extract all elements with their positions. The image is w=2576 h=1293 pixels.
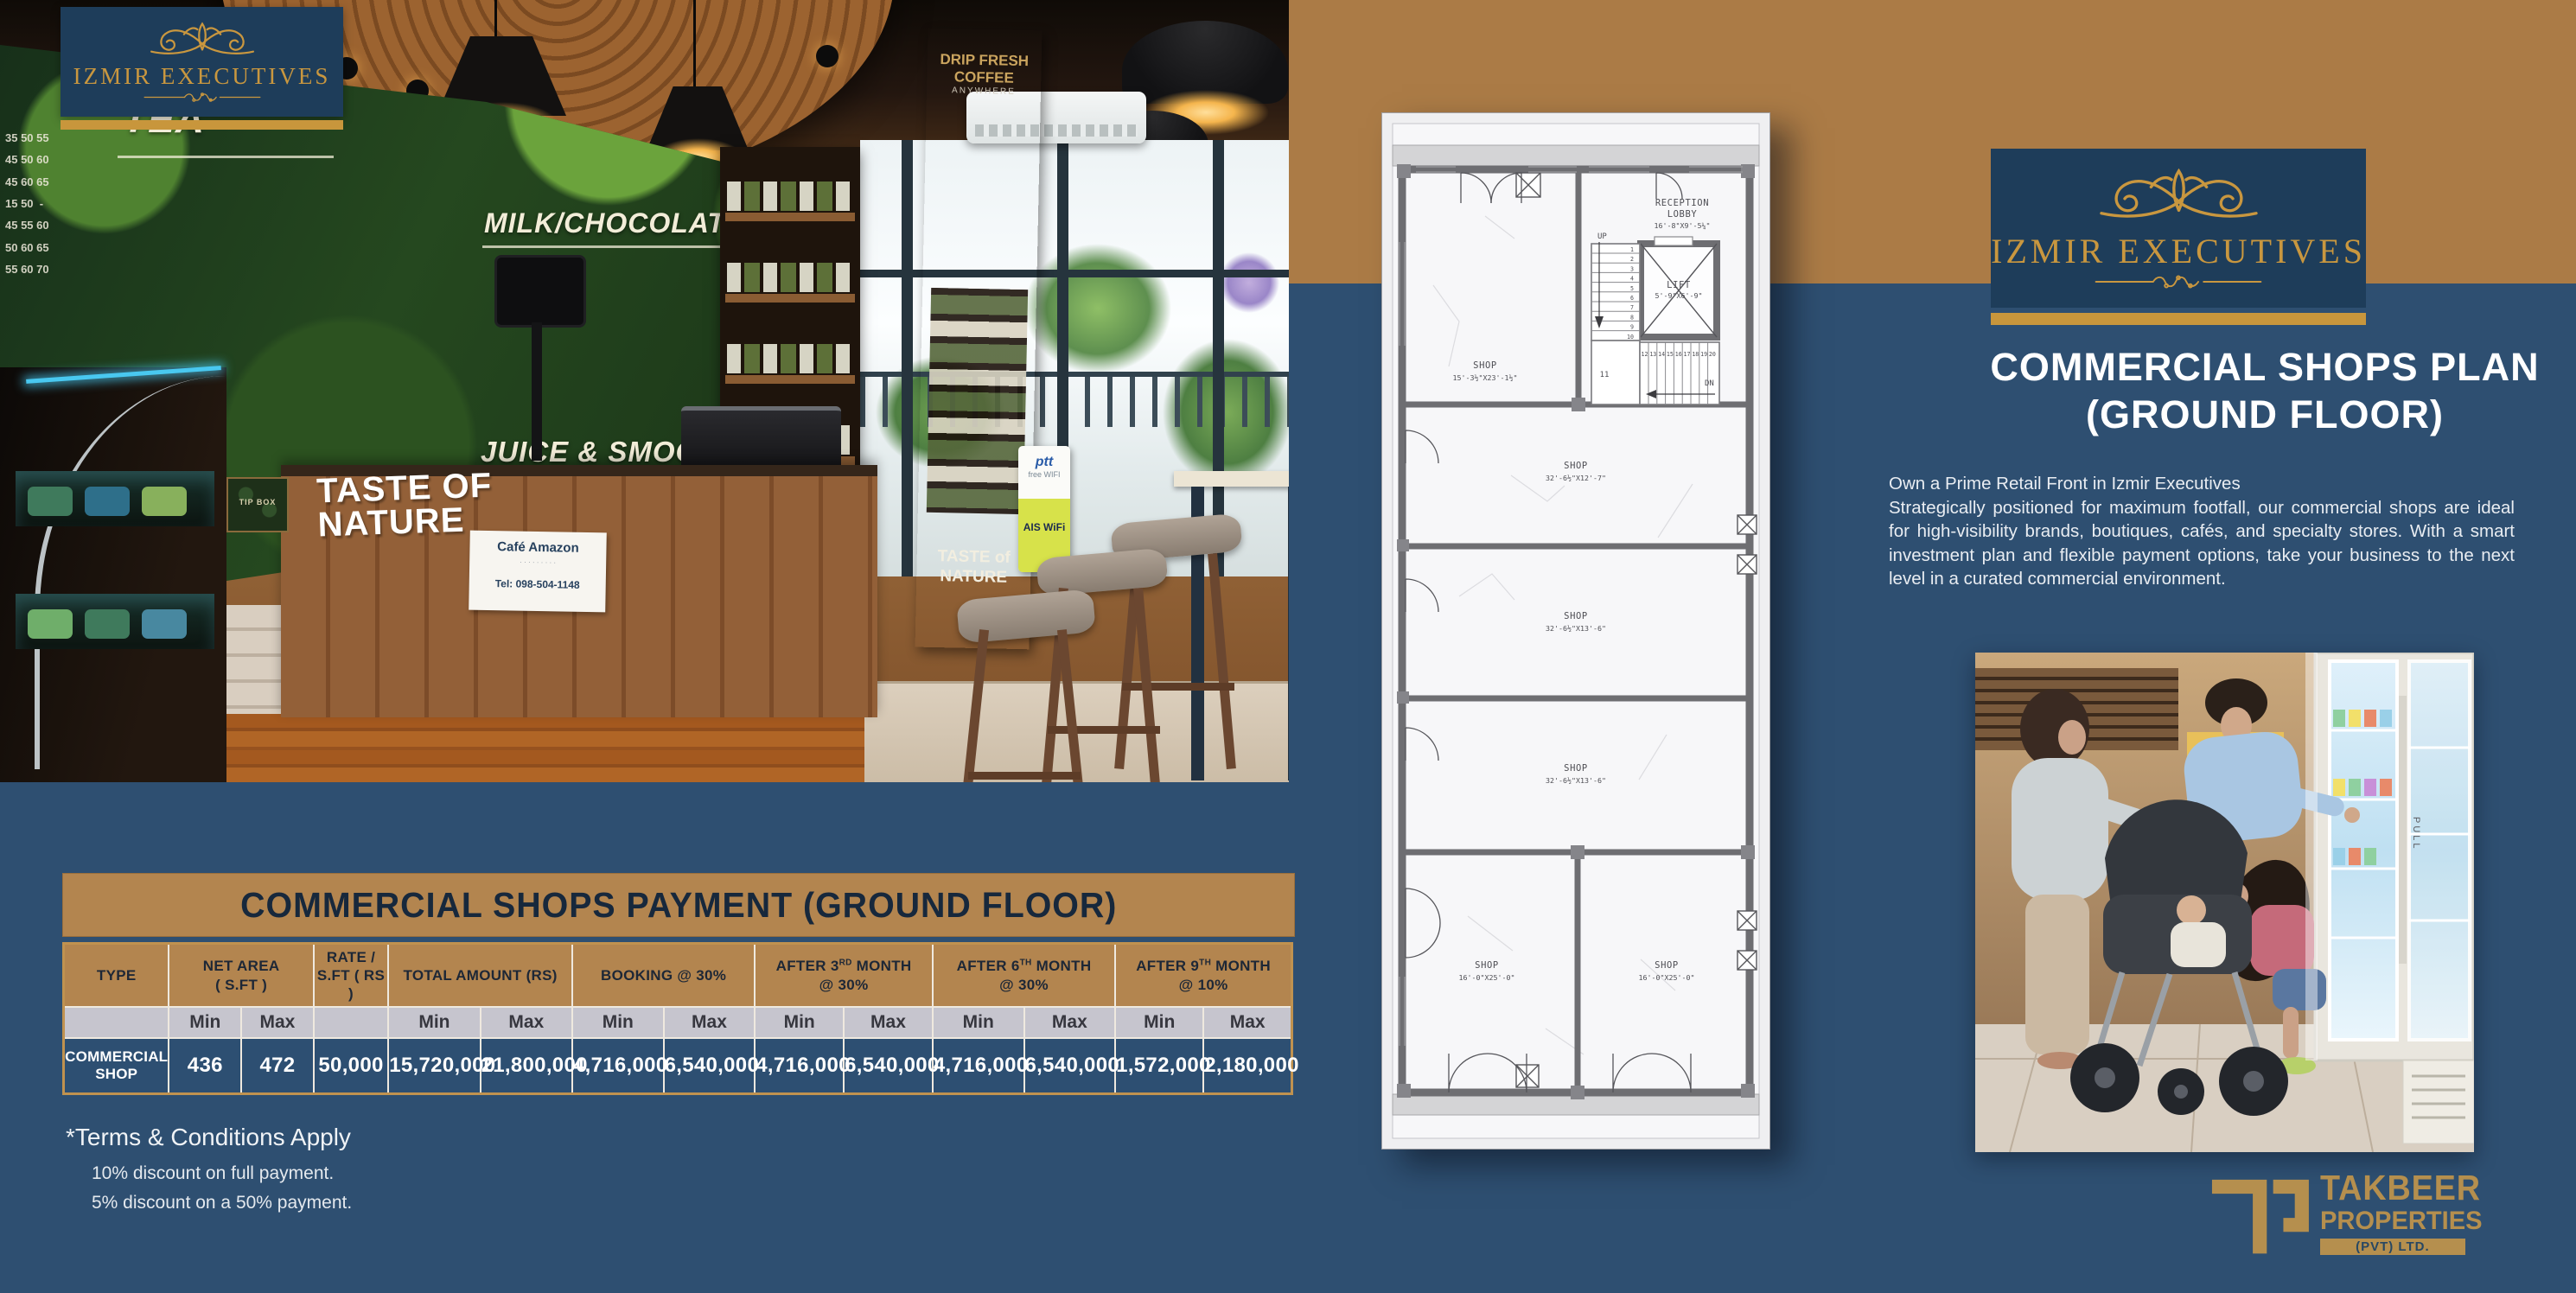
table-top [1174, 471, 1289, 487]
ptt-logo: ptt [1018, 455, 1070, 470]
table-leg [1288, 487, 1289, 780]
minmax-subheader: Min [169, 1007, 241, 1038]
terms-line: 10% discount on full payment. [92, 1163, 334, 1184]
svg-text:SHOP: SHOP [1473, 360, 1497, 371]
minmax-subheader: Max [664, 1007, 756, 1038]
pull-label: PULL [2411, 817, 2421, 851]
payment-table: TYPENET AREA( S.FT )RATE /S.FT ( RS )TOT… [62, 942, 1293, 1095]
row-value-cell: 2,180,000 [1203, 1038, 1291, 1094]
counter-taste-sign: TASTE OF NATURE [316, 468, 494, 542]
bar-stool [958, 595, 1100, 782]
paper-subtext: · · · · · · · · · [469, 557, 606, 568]
shelf [725, 294, 855, 303]
row-value-cell: 1,572,000 [1115, 1038, 1203, 1094]
cafe-notice-paper: Café Amazon · · · · · · · · · Tel: 098-5… [469, 531, 607, 613]
pos-stand [532, 322, 542, 461]
products [727, 263, 853, 292]
row-value-cell: 6,540,000 [1024, 1038, 1116, 1094]
lamp-wire [693, 0, 696, 86]
svg-text:9: 9 [1630, 324, 1634, 331]
svg-text:DN: DN [1705, 379, 1714, 388]
svg-text:SHOP: SHOP [1655, 960, 1679, 971]
svg-text:15: 15 [1667, 351, 1674, 358]
shelf [725, 375, 855, 384]
fridge-handle [2399, 696, 2407, 964]
minmax-subheader: Min [572, 1007, 664, 1038]
svg-text:SHOP: SHOP [1564, 461, 1588, 471]
column-header: NET AREA( S.FT ) [169, 944, 313, 1008]
svg-text:7: 7 [1630, 304, 1634, 311]
drip-sign-line2: COFFEE [927, 68, 1041, 88]
svg-text:10: 10 [1627, 334, 1634, 341]
minmax-subheader: Max [1203, 1007, 1291, 1038]
lamp-wire [494, 0, 497, 38]
svg-text:20: 20 [1709, 351, 1716, 358]
izmir-logo-card-panel: IZMIR EXECUTIVES [1991, 149, 2366, 308]
flourish-divider-icon [2092, 271, 2265, 292]
window-mullion [902, 140, 913, 576]
panel-title: COMMERCIAL SHOPS PLAN (GROUND FLOOR) [1928, 344, 2576, 439]
ornament-icon [137, 20, 267, 63]
gold-underline [1991, 313, 2366, 325]
svg-text:32'-6½"X13'-6": 32'-6½"X13'-6" [1546, 624, 1606, 633]
intro-paragraph: Strategically positioned for maximum foo… [1889, 496, 2515, 590]
takbeer-monogram-icon [2209, 1170, 2311, 1264]
column-header: TYPE [64, 944, 169, 1008]
lift: LIFT 5'-9"X6'-9" [1641, 237, 1717, 337]
pastry-display-case [0, 367, 226, 782]
flourish-divider-icon [142, 90, 263, 105]
row-value-cell: 6,540,000 [844, 1038, 933, 1094]
svg-text:5'-9"X6'-9": 5'-9"X6'-9" [1655, 291, 1703, 300]
row-type-cell: COMMERCIAL SHOP [64, 1038, 169, 1094]
svg-text:19: 19 [1700, 351, 1707, 358]
svg-text:16: 16 [1675, 351, 1682, 358]
light-streak [2305, 653, 2318, 1061]
svg-text:4: 4 [1630, 276, 1634, 283]
floor-plan-sheet: LIFT 5'-9"X6'-9" 12345678910 12131415161… [1381, 112, 1770, 1150]
svg-text:11: 11 [1600, 371, 1610, 379]
menu-rule [118, 156, 334, 158]
svg-text:1: 1 [1630, 246, 1634, 253]
products [727, 344, 853, 373]
coffee-boxes [927, 288, 1028, 514]
products [727, 182, 853, 211]
svg-text:32'-6½"X12'-7": 32'-6½"X12'-7" [1546, 474, 1606, 482]
row-value-cell: 436 [169, 1038, 241, 1094]
svg-text:12: 12 [1642, 351, 1648, 358]
ornament-icon [2082, 165, 2276, 231]
case-shelf [16, 471, 214, 526]
cafe-interior-photo: TEA 35 50 55 45 50 60 45 60 65 15 50 - 4… [0, 0, 1289, 782]
minmax-subheader: Min [933, 1007, 1024, 1038]
row-value-cell: 472 [241, 1038, 314, 1094]
row-value-cell: 4,716,000 [755, 1038, 844, 1094]
svg-text:16'-0"X25'-0": 16'-0"X25'-0" [1639, 973, 1695, 982]
svg-text:8: 8 [1630, 314, 1634, 321]
gold-underline [61, 120, 343, 130]
izmir-logo-card: IZMIR EXECUTIVES [61, 7, 343, 117]
menu-heading-milk: MILK/CHOCOLATE [484, 207, 744, 239]
row-value-cell: 21,800,000 [481, 1038, 572, 1094]
flowers [1219, 252, 1279, 313]
floor-plan-drawing: LIFT 5'-9"X6'-9" 12345678910 12131415161… [1381, 112, 1770, 1150]
minmax-subheader [64, 1007, 169, 1038]
menu-rule [482, 245, 742, 248]
column-header: RATE /S.FT ( RS ) [314, 944, 389, 1008]
svg-text:LOBBY: LOBBY [1667, 209, 1698, 220]
spotlight-icon [816, 45, 838, 67]
payment-banner-title: COMMERCIAL SHOPS PAYMENT (GROUND FLOOR) [240, 885, 1117, 926]
intro-first-line: Own a Prime Retail Front in Izmir Execut… [1889, 472, 2515, 495]
takbeer-pvt-ltd: (PVT) LTD. [2320, 1239, 2465, 1255]
svg-text:SHOP: SHOP [1564, 763, 1588, 774]
izmir-logo-text: IZMIR EXECUTIVES [73, 63, 331, 90]
shelf [725, 213, 855, 221]
takbeer-properties: PROPERTIES [2320, 1208, 2490, 1234]
drip-sign-line3: ANYWHERE [927, 86, 1041, 98]
column-header: AFTER 6TH MONTH@ 30% [933, 944, 1115, 1008]
column-header: AFTER 3RD MONTH@ 30% [755, 944, 933, 1008]
payment-banner: COMMERCIAL SHOPS PAYMENT (GROUND FLOOR) [62, 873, 1295, 937]
row-value-cell: 50,000 [314, 1038, 389, 1094]
case-shelf [16, 594, 214, 649]
svg-text:SHOP: SHOP [1475, 960, 1499, 971]
svg-text:32'-6½"X13'-6": 32'-6½"X13'-6" [1546, 776, 1606, 785]
izmir-logo-text: IZMIR EXECUTIVES [1991, 231, 2366, 271]
svg-text:5: 5 [1630, 285, 1634, 292]
svg-text:13: 13 [1649, 351, 1656, 358]
family-shopping-photo: PULL [1975, 653, 2474, 1152]
row-value-cell: 15,720,000 [388, 1038, 480, 1094]
paper-title: Café Amazon [469, 539, 606, 557]
column-header: BOOKING @ 30% [572, 944, 755, 1008]
svg-text:16'-8"X9'-5¼": 16'-8"X9'-5¼" [1655, 221, 1711, 230]
plant [1024, 244, 1171, 373]
svg-text:15'-3½"X23'-1½": 15'-3½"X23'-1½" [1453, 373, 1518, 382]
svg-text:3: 3 [1630, 265, 1634, 272]
ptt-wifi-label: free WIFI [1018, 470, 1070, 479]
drip-sign-line1: DRIP FRESH [928, 51, 1042, 71]
minmax-subheader: Max [481, 1007, 572, 1038]
minmax-subheader: Min [1115, 1007, 1203, 1038]
taste-of-nature-sign: TASTE of NATURE [916, 545, 1031, 589]
menu-prices: 35 50 55 45 50 60 45 60 65 15 50 - 45 55… [5, 127, 49, 280]
curved-glass [35, 376, 226, 769]
row-value-cell: 4,716,000 [572, 1038, 664, 1094]
svg-text:17: 17 [1684, 351, 1691, 358]
terms-title: *Terms & Conditions Apply [66, 1124, 351, 1151]
svg-text:14: 14 [1658, 351, 1665, 358]
ais-wifi-label: AIS WiFi [1018, 521, 1070, 533]
paper-phone: Tel: 098-504-1148 [469, 577, 606, 592]
minmax-subheader: Max [844, 1007, 933, 1038]
takbeer-logo: TAKBEER PROPERTIES (PVT) LTD. [2209, 1170, 2495, 1274]
minmax-subheader: Max [1024, 1007, 1116, 1038]
row-value-cell: 4,716,000 [933, 1038, 1024, 1094]
svg-text:LIFT: LIFT [1667, 280, 1691, 290]
column-header: TOTAL AMOUNT (RS) [388, 944, 572, 1008]
terms-line: 5% discount on a 50% payment. [92, 1193, 352, 1213]
minmax-subheader: Max [241, 1007, 314, 1038]
takbeer-name: TAKBEER [2320, 1170, 2481, 1206]
svg-text:2: 2 [1630, 256, 1634, 263]
minmax-subheader: Min [755, 1007, 844, 1038]
minmax-subheader: Min [388, 1007, 480, 1038]
svg-text:SHOP: SHOP [1564, 611, 1588, 621]
svg-text:RECEPTION: RECEPTION [1655, 198, 1709, 208]
pos-screen [494, 255, 586, 328]
svg-text:6: 6 [1630, 295, 1634, 302]
column-header: AFTER 9TH MONTH@ 10% [1115, 944, 1291, 1008]
row-value-cell: 6,540,000 [664, 1038, 756, 1094]
svg-text:UP: UP [1597, 232, 1607, 241]
svg-text:16'-0"X25'-0": 16'-0"X25'-0" [1459, 973, 1515, 982]
tip-box: TIP BOX [226, 477, 289, 532]
brochure-canvas: TEA 35 50 55 45 50 60 45 60 65 15 50 - 4… [0, 0, 2576, 1293]
minmax-subheader [314, 1007, 389, 1038]
svg-text:18: 18 [1692, 351, 1699, 358]
